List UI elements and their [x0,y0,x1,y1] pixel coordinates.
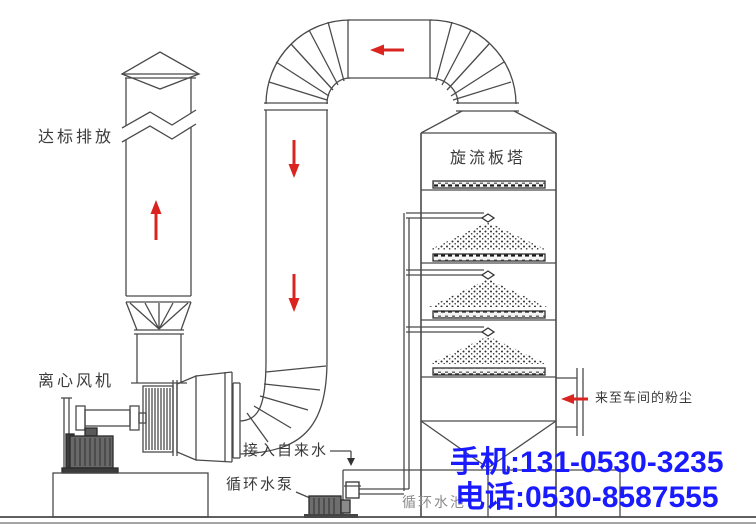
contact-phone: 电话:0530-8587555 [455,483,719,513]
flow-arrow-down-2 [289,274,300,312]
label-dust-inlet: 来至车间的粉尘 [595,391,693,404]
flow-arrow-duct-left [370,45,404,56]
fan-inlet-fins [143,386,173,452]
chimney-stack [122,52,199,383]
flow-arrow-chimney-up [151,200,162,240]
elbow-top-right [430,20,516,104]
label-emission: 达标排放 [38,130,114,146]
contact-mobile: 手机:131-0530-3235 [450,448,724,478]
flow-arrow-down-1 [289,140,300,178]
chimney-base-transition [126,296,191,383]
flow-arrow-inlet [561,394,588,404]
fan-shaft-coupling [76,406,146,430]
label-tower: 旋流板塔 [450,151,526,167]
scrubber-system-diagram: 达标排放 旋流板塔 离心风机 接入自来水 循环水泵 循环水池 来至车间的粉尘 手… [0,0,756,529]
label-fan: 离心风机 [38,374,114,390]
fan-motor [62,428,118,473]
pipe-break-symbol [122,110,196,142]
elbow-top-left [266,20,350,104]
flow-arrows [151,45,589,405]
tap-water-line [330,451,355,466]
centrifugal-fan [53,372,232,517]
spray-nozzles [406,213,547,364]
label-pump: 循环水泵 [226,477,294,492]
label-tap-water: 接入自来水 [243,443,328,458]
circulation-pump [304,482,361,518]
fan-base [53,473,208,517]
ground-line [0,517,756,523]
chimney-cap [122,52,199,89]
